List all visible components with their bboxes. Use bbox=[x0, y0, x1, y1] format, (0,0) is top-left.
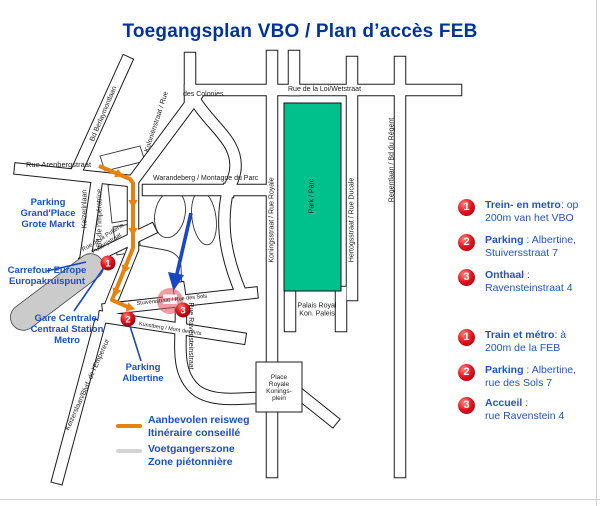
legend-item-fr-2: 2 Parking : Albertine,rue des Sols 7 bbox=[456, 364, 594, 390]
legend-fr-2-line2: rue des Sols 7 bbox=[485, 377, 552, 389]
palais-royal-line1: Palais Royal bbox=[298, 303, 337, 311]
poi-label-gare-centrale: Gare Centrale/ Centraal Station Metro bbox=[21, 313, 113, 346]
gare-line2: Centraal Station bbox=[21, 324, 113, 335]
place-royale-line4: plein bbox=[266, 395, 292, 402]
svg-text:3: 3 bbox=[180, 305, 185, 316]
legend-nl-3-rest: : bbox=[524, 269, 530, 281]
legend-fr-1-rest: : à bbox=[554, 329, 566, 341]
legend-item-nl-1-text: Trein- en metro: op200m van het VBO bbox=[485, 199, 594, 225]
poi-label-parking-grand-place: Parking Grand'Place Grote Markt bbox=[8, 197, 88, 230]
parking-gp-line2: Grand'Place bbox=[8, 208, 88, 219]
marker-badge-2-fr: 2 bbox=[458, 364, 475, 381]
legend-zone-nl: Voetgangerszone bbox=[148, 443, 235, 456]
legend-nl-1-name: Trein- en metro bbox=[485, 199, 561, 211]
marker-badge-1-fr: 1 bbox=[458, 329, 475, 346]
place-royale-line3: Konings- bbox=[266, 388, 292, 395]
legend-item-nl-3-text: Onthaal :Ravensteinstraat 4 bbox=[485, 269, 594, 295]
legend-route-fr: Itinéraire conseillé bbox=[148, 427, 250, 440]
legend-item-nl-1: 1 Trein- en metro: op200m van het VBO bbox=[456, 199, 594, 225]
parking-gp-line3: Grote Markt bbox=[8, 219, 88, 230]
poi-label-carrefour-europe: Carrefour Europe Europakruispunt bbox=[2, 265, 92, 287]
page-right-divider bbox=[596, 0, 597, 506]
legend-nl-3-name: Onthaal bbox=[485, 269, 524, 281]
page-bottom-divider bbox=[0, 499, 600, 500]
legend-route-nl: Aanbevolen reisweg bbox=[148, 414, 250, 427]
route-legend-swatch bbox=[116, 424, 142, 428]
map-marker-2: 2 bbox=[121, 312, 136, 327]
street-label-des-colonies: des Colonies bbox=[183, 91, 223, 99]
legend-zone-fr: Zone piétonnière bbox=[148, 456, 235, 469]
marker-badge-1: 1 bbox=[458, 199, 475, 216]
legend-nl-2-name: Parking bbox=[485, 234, 524, 246]
legend-fr-3-name: Accueil bbox=[485, 397, 522, 409]
map-marker-1: 1 bbox=[101, 256, 116, 271]
legend-item-fr-2-text: Parking : Albertine,rue des Sols 7 bbox=[485, 364, 594, 390]
svg-text:1: 1 bbox=[105, 258, 111, 269]
parking-gp-line1: Parking bbox=[8, 197, 88, 208]
albertine-callout-line bbox=[130, 326, 141, 361]
legend-fr-1-name: Train et métro bbox=[485, 329, 554, 341]
legend-nl-2-line2: Stuiversstraat 7 bbox=[485, 247, 558, 259]
albertine-line1: Parking bbox=[112, 362, 174, 373]
svg-text:2: 2 bbox=[125, 314, 130, 325]
poi-label-parking-albertine: Parking Albertine bbox=[112, 362, 174, 384]
legend-route-row: Aanbevolen reisweg Itinéraire conseillé bbox=[148, 414, 250, 440]
poi-label-palais-royal: Palais Royal Kon. Paleis bbox=[298, 303, 337, 318]
legend-fr-3-line2: rue Ravenstein 4 bbox=[485, 410, 564, 422]
legend-fr-1-line2: 200m de la FEB bbox=[485, 342, 560, 354]
legend-zone-row: Voetgangerszone Zone piétonnière bbox=[148, 443, 235, 469]
legend-nl-3-line2: Ravensteinstraat 4 bbox=[485, 282, 573, 294]
zone-legend-swatch bbox=[116, 449, 142, 453]
legend-item-fr-3-text: Accueil :rue Ravenstein 4 bbox=[485, 397, 594, 423]
palais-royal-line2: Kon. Paleis bbox=[298, 310, 337, 318]
legend-item-nl-2-text: Parking : Albertine,Stuiversstraat 7 bbox=[485, 234, 594, 260]
legend-nl-1-line2: 200m van het VBO bbox=[485, 212, 574, 224]
place-royale-line2: Royale bbox=[266, 381, 292, 388]
street-label-rue-ducale: Hertogsstraat / Rue Ducale bbox=[348, 178, 356, 262]
legend-fr-2-rest: : Albertine, bbox=[524, 364, 577, 376]
place-royale-line1: Place bbox=[266, 374, 292, 381]
albertine-line2: Albertine bbox=[112, 373, 174, 384]
carrefour-line2: Europakruispunt bbox=[2, 276, 92, 287]
legend-item-nl-2: 2 Parking : Albertine,Stuiversstraat 7 bbox=[456, 234, 594, 260]
legend-item-fr-1: 1 Train et métro: à200m de la FEB bbox=[456, 329, 594, 355]
marker-badge-3: 3 bbox=[458, 269, 475, 286]
legend-nl-2-rest: : Albertine, bbox=[524, 234, 577, 246]
legend-item-fr-3: 3 Accueil :rue Ravenstein 4 bbox=[456, 397, 594, 423]
gare-line1: Gare Centrale/ bbox=[21, 313, 113, 324]
poi-label-place-royale: Place Royale Konings- plein bbox=[266, 374, 292, 402]
gare-line3: Metro bbox=[21, 335, 113, 346]
marker-badge-3-fr: 3 bbox=[458, 397, 475, 414]
street-label-warandeberg: Warandeberg / Montagne du Parc bbox=[153, 175, 258, 183]
legend-fr-2-name: Parking bbox=[485, 364, 524, 376]
legend-item-nl-3: 3 Onthaal :Ravensteinstraat 4 bbox=[456, 269, 594, 295]
legend-fr-3-rest: : bbox=[522, 397, 528, 409]
marker-badge-2: 2 bbox=[458, 234, 475, 251]
street-label-rue-royale: Koningsstraat / Rue Royale bbox=[268, 177, 276, 262]
legend-item-fr-1-text: Train et métro: à200m de la FEB bbox=[485, 329, 594, 355]
street-label-regentlaan: Regentlaan / Bd du Régent bbox=[388, 118, 396, 202]
street-label-rue-de-la-loi: Rue de la Loi/Wetstraat bbox=[288, 86, 361, 94]
legend-nl-1-rest: : op bbox=[561, 199, 579, 211]
access-map-page: Toegangsplan VBO / Plan d’accès FEB bbox=[0, 0, 600, 506]
park-label: Park / Parc bbox=[308, 179, 316, 214]
carrefour-line1: Carrefour Europe bbox=[2, 265, 92, 276]
street-label-arenbergstraat: Rue Arenbergstraat bbox=[26, 161, 91, 169]
